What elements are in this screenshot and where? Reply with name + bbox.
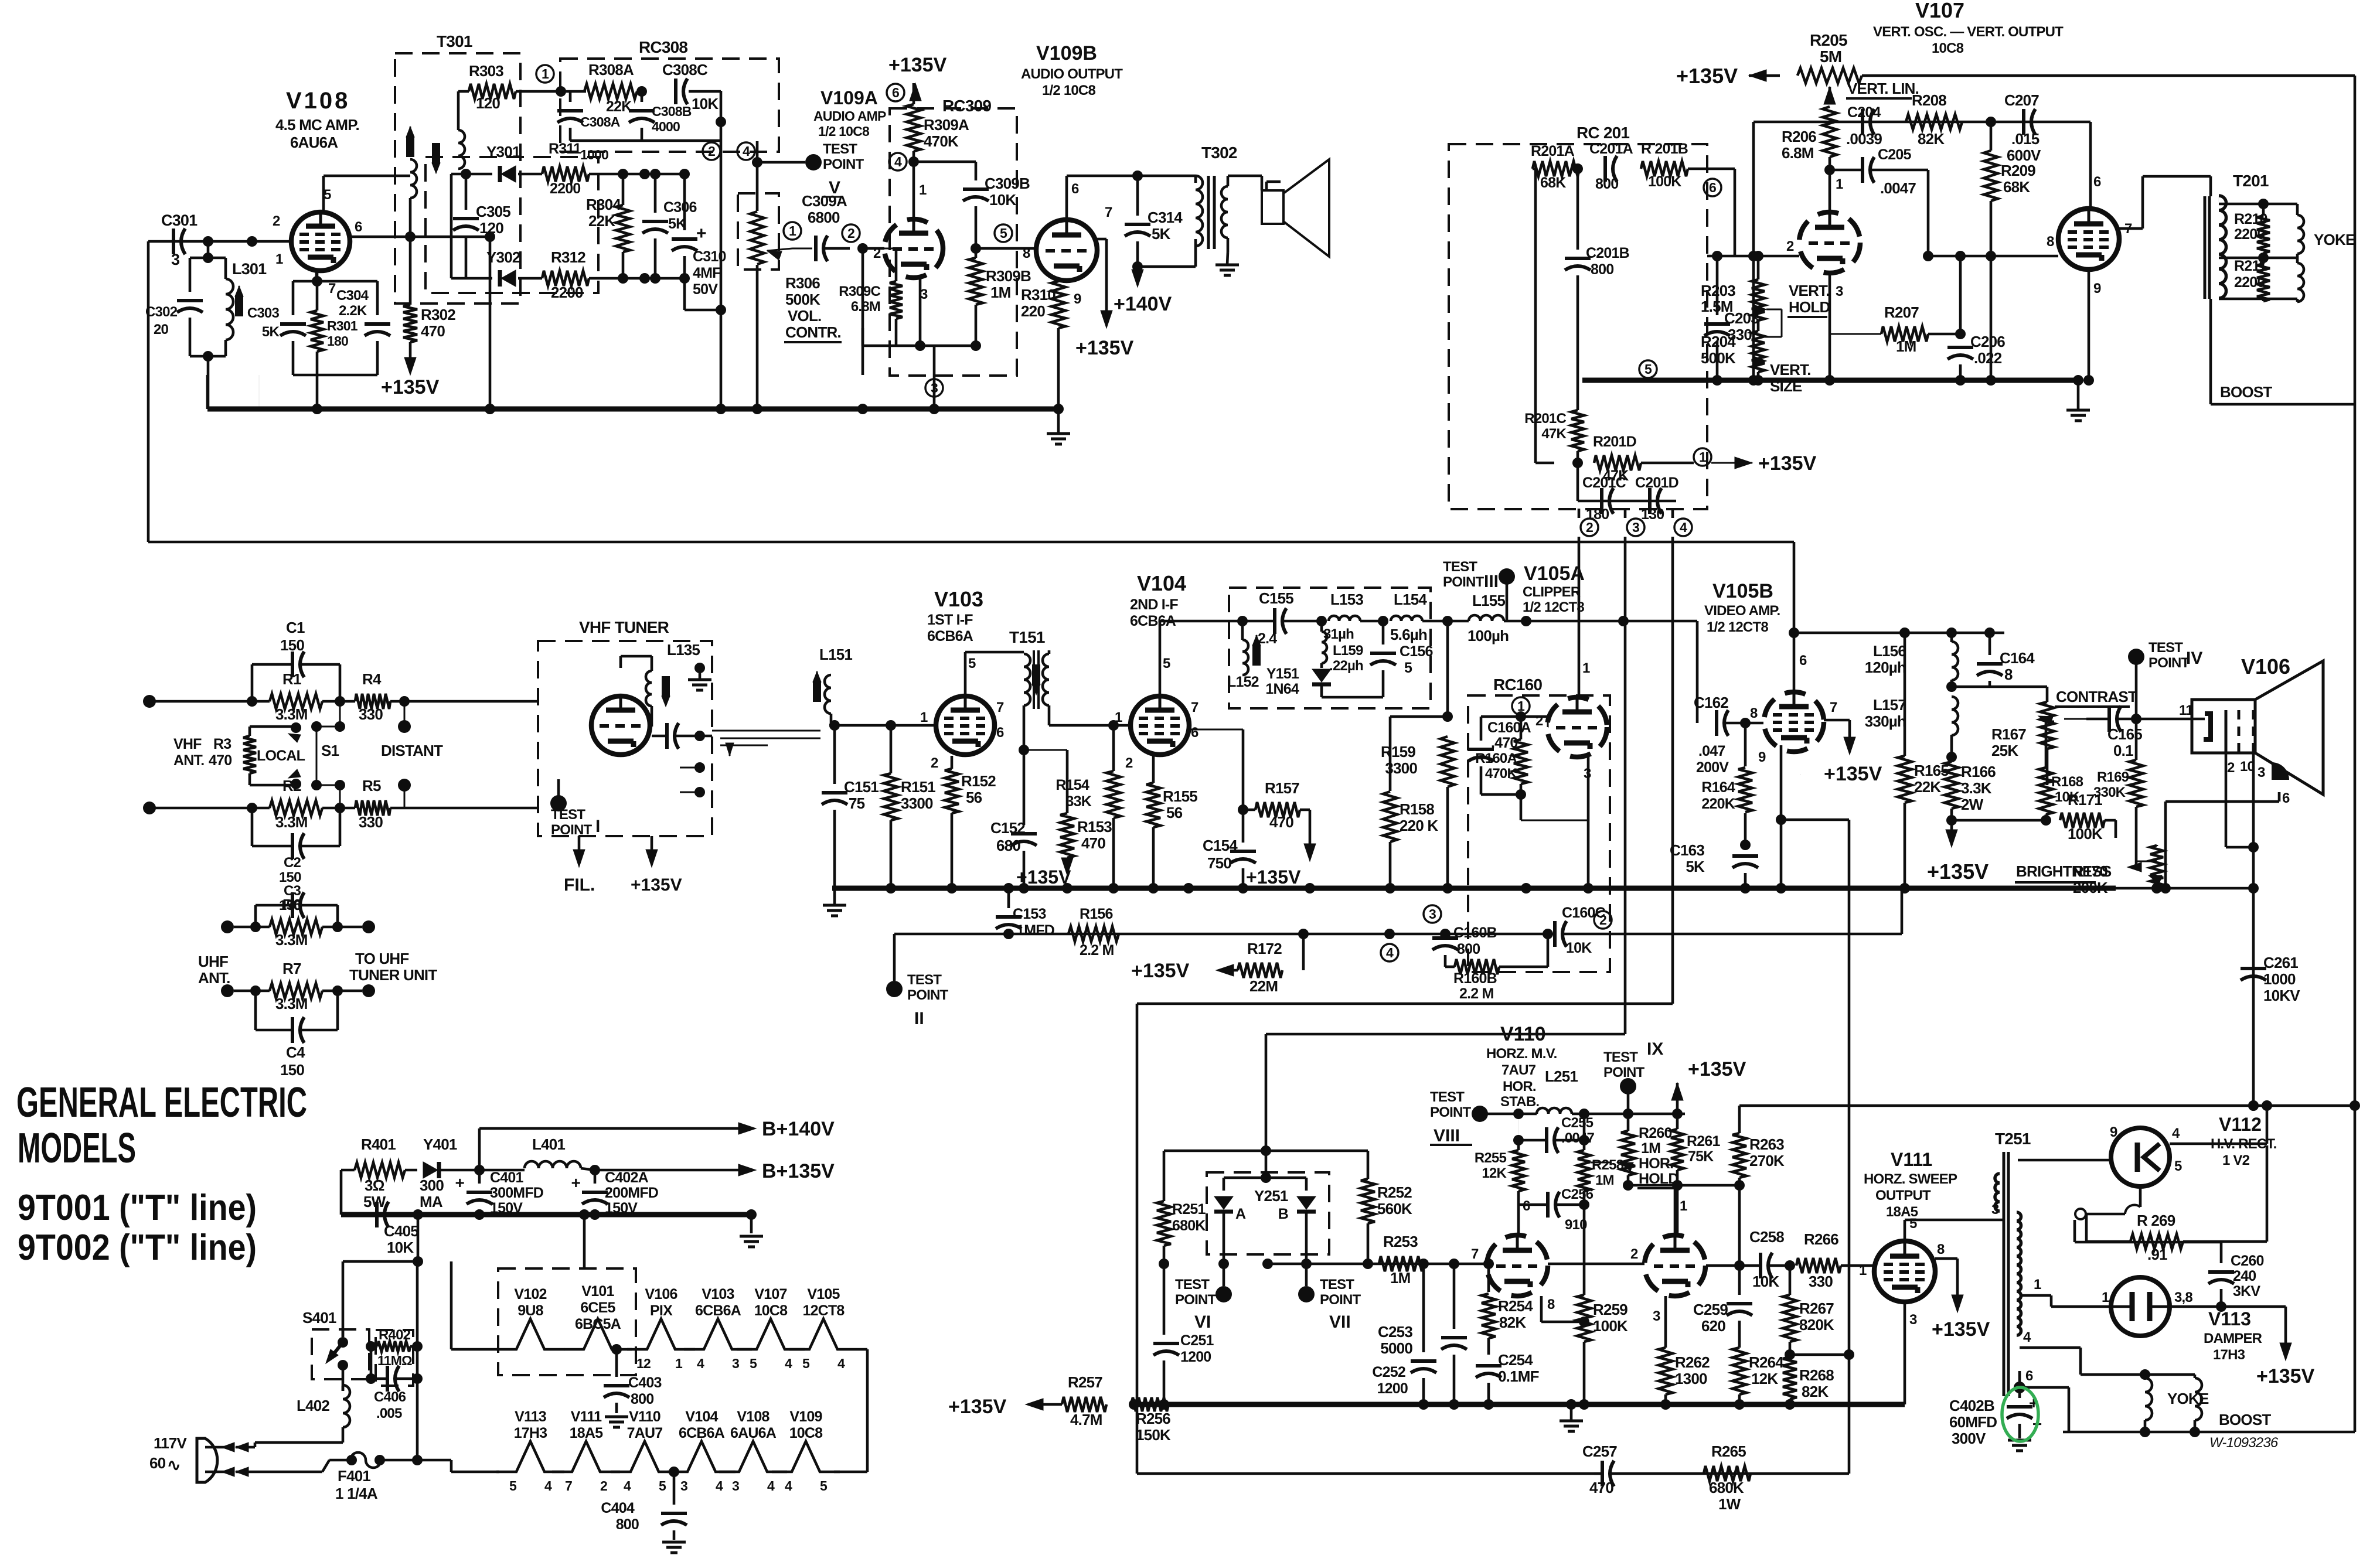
svg-text:17H3: 17H3	[514, 1425, 547, 1441]
svg-text:100K: 100K	[1593, 1317, 1628, 1335]
svg-text:+135V: +135V	[1246, 867, 1301, 888]
svg-text:C204: C204	[1847, 104, 1881, 121]
svg-text:R1: R1	[282, 670, 301, 688]
svg-text:+135V: +135V	[1932, 1318, 1990, 1341]
svg-text:10K: 10K	[692, 95, 719, 112]
svg-text:2200: 2200	[2234, 226, 2265, 243]
svg-text:6.8M: 6.8M	[851, 299, 880, 315]
svg-text:1M: 1M	[1595, 1172, 1614, 1188]
svg-text:4: 4	[697, 1356, 704, 1371]
svg-text:VI: VI	[1194, 1312, 1211, 1332]
svg-text:2: 2	[708, 144, 715, 159]
svg-text:1: 1	[542, 66, 549, 81]
svg-text:1: 1	[2102, 1290, 2109, 1305]
svg-text:POINT: POINT	[907, 987, 948, 1003]
svg-text:HORZ. M.V.: HORZ. M.V.	[1486, 1046, 1557, 1062]
svg-text:7: 7	[565, 1478, 572, 1493]
svg-text:3: 3	[1429, 906, 1436, 922]
svg-text:7AU7: 7AU7	[627, 1425, 663, 1441]
svg-text:.005: .005	[376, 1406, 402, 1421]
svg-text:L402: L402	[297, 1397, 329, 1414]
svg-text:82K: 82K	[1918, 130, 1945, 148]
svg-text:330: 330	[1809, 1273, 1833, 1290]
svg-text:330: 330	[359, 813, 383, 831]
svg-text:L154: L154	[1394, 591, 1427, 608]
svg-text:1/2 10C8: 1/2 10C8	[1042, 83, 1095, 98]
svg-text:C206: C206	[1970, 333, 2005, 350]
svg-text:C160A: C160A	[1487, 719, 1531, 736]
svg-text:VERT. OSC. — VERT. OUTPUT: VERT. OSC. — VERT. OUTPUT	[1873, 24, 2064, 40]
svg-text:6: 6	[2025, 1368, 2033, 1384]
svg-text:100K: 100K	[2068, 825, 2103, 843]
svg-text:TEST: TEST	[823, 141, 857, 157]
svg-text:10KV: 10KV	[2263, 987, 2300, 1004]
svg-text:C252: C252	[1372, 1364, 1405, 1380]
svg-text:3300: 3300	[901, 794, 933, 812]
svg-text:8: 8	[2047, 234, 2054, 250]
svg-text:6: 6	[1523, 1198, 1530, 1214]
svg-text:TEST: TEST	[1443, 559, 1477, 575]
svg-text:R166: R166	[1961, 763, 1996, 780]
svg-text:POINT: POINT	[551, 822, 592, 838]
svg-text:5: 5	[1909, 1216, 1917, 1232]
svg-text:DAMPER: DAMPER	[2204, 1331, 2262, 1346]
svg-text:V109A: V109A	[820, 87, 878, 108]
svg-text:0.1MF: 0.1MF	[1498, 1368, 1539, 1385]
svg-text:6: 6	[996, 725, 1004, 741]
svg-text:6CB6A: 6CB6A	[679, 1425, 725, 1441]
svg-text:V109B: V109B	[1036, 42, 1097, 64]
svg-text:.22µh: .22µh	[1329, 658, 1363, 674]
svg-text:2.2 M: 2.2 M	[1459, 985, 1494, 1002]
svg-text:R263: R263	[1749, 1135, 1784, 1153]
svg-text:RC308: RC308	[639, 38, 687, 56]
svg-text:V106: V106	[645, 1286, 677, 1302]
svg-text:C255: C255	[1561, 1115, 1594, 1131]
svg-text:2: 2	[1786, 238, 1794, 254]
svg-text:V104: V104	[1137, 571, 1186, 595]
svg-text:HOR.: HOR.	[1639, 1155, 1673, 1172]
svg-text:5: 5	[1163, 656, 1170, 671]
svg-text:50V: 50V	[693, 281, 718, 298]
svg-text:C306: C306	[663, 199, 697, 216]
svg-text:7: 7	[1830, 700, 1837, 715]
svg-text:V110: V110	[629, 1409, 660, 1425]
svg-text:S1: S1	[321, 742, 339, 759]
svg-text:C308A: C308A	[580, 114, 620, 129]
svg-text:1W: 1W	[1718, 1495, 1741, 1513]
svg-text:3KV: 3KV	[2233, 1283, 2260, 1300]
svg-text:TO UHF: TO UHF	[355, 950, 409, 967]
svg-text:HORZ. SWEEP: HORZ. SWEEP	[1864, 1171, 1957, 1187]
svg-text:800: 800	[1457, 941, 1480, 957]
svg-text:R251: R251	[1172, 1201, 1206, 1218]
svg-text:2ND I-F: 2ND I-F	[1130, 596, 1178, 613]
svg-text:R206: R206	[1782, 128, 1816, 145]
svg-text:C260: C260	[2231, 1253, 2264, 1269]
svg-text:C259: C259	[1693, 1301, 1728, 1318]
svg-text:R264: R264	[1749, 1353, 1784, 1371]
svg-text:1M: 1M	[1896, 337, 1916, 355]
svg-text:.0047: .0047	[1561, 1130, 1595, 1146]
svg-text:R310: R310	[1021, 286, 1055, 304]
svg-text:680K: 680K	[1709, 1479, 1744, 1496]
svg-text:+135V: +135V	[1758, 452, 1817, 475]
svg-text:R201D: R201D	[1593, 434, 1636, 450]
svg-text:3: 3	[1836, 284, 1843, 299]
svg-text:C301: C301	[161, 212, 198, 229]
svg-text:B+135V: B+135V	[762, 1160, 835, 1182]
svg-text:R158: R158	[1400, 800, 1434, 818]
svg-text:1 1/4A: 1 1/4A	[335, 1485, 378, 1502]
svg-text:2W: 2W	[1961, 796, 1984, 813]
svg-text:+: +	[696, 224, 707, 243]
svg-text:8: 8	[1547, 1297, 1555, 1312]
svg-text:1300: 1300	[1675, 1370, 1707, 1387]
svg-text:C253: C253	[1378, 1323, 1412, 1341]
svg-text:R2: R2	[282, 777, 301, 794]
svg-text:12: 12	[636, 1356, 651, 1371]
svg-text:Y151: Y151	[1266, 666, 1299, 682]
svg-text:10K: 10K	[1752, 1273, 1779, 1290]
svg-text:4: 4	[785, 1478, 792, 1493]
svg-text:C257: C257	[1582, 1443, 1617, 1460]
svg-text:200MFD: 200MFD	[605, 1185, 658, 1201]
svg-text:V107: V107	[754, 1286, 786, 1302]
svg-text:60MFD: 60MFD	[1949, 1413, 1997, 1431]
svg-text:2: 2	[931, 755, 938, 771]
svg-text:R265: R265	[1711, 1443, 1746, 1460]
svg-text:1N64: 1N64	[1265, 681, 1299, 697]
svg-text:.015: .015	[2011, 130, 2039, 148]
svg-text:TEST: TEST	[907, 972, 942, 988]
svg-text:2.2 M: 2.2 M	[1080, 942, 1114, 959]
svg-text:C402A: C402A	[605, 1169, 649, 1186]
svg-text:Y251: Y251	[1254, 1187, 1288, 1205]
svg-text:+135V: +135V	[631, 875, 682, 895]
svg-text:12K: 12K	[1482, 1165, 1507, 1181]
svg-text:R257: R257	[1068, 1373, 1102, 1391]
svg-text:VERT. LIN.: VERT. LIN.	[1847, 80, 1919, 97]
svg-text:31µh: 31µh	[1323, 626, 1354, 642]
svg-text:1200: 1200	[1180, 1349, 1211, 1365]
svg-text:3Ω: 3Ω	[365, 1177, 384, 1194]
svg-text:1: 1	[675, 1356, 683, 1371]
svg-text:20: 20	[154, 322, 169, 337]
svg-text:5K: 5K	[1152, 225, 1171, 243]
svg-text:MA: MA	[420, 1193, 443, 1210]
svg-text:4: 4	[894, 154, 902, 169]
svg-text:1: 1	[1836, 176, 1843, 192]
svg-text:V111: V111	[1891, 1149, 1932, 1170]
svg-text:C256: C256	[1561, 1186, 1594, 1202]
svg-text:VHF: VHF	[173, 736, 202, 752]
svg-text:300: 300	[420, 1177, 444, 1194]
svg-text:1: 1	[275, 251, 283, 267]
svg-text:CLIPPER: CLIPPER	[1523, 584, 1581, 600]
svg-text:+135V: +135V	[1688, 1058, 1746, 1080]
svg-text:800: 800	[616, 1516, 639, 1533]
svg-text:9: 9	[2093, 281, 2101, 296]
svg-text:6BC5A: 6BC5A	[575, 1316, 621, 1332]
svg-text:C203: C203	[1724, 309, 1759, 327]
svg-text:UHF: UHF	[198, 953, 228, 970]
svg-text:C303: C303	[247, 305, 280, 321]
svg-text:LOCAL: LOCAL	[257, 748, 305, 764]
svg-text:A: A	[1235, 1206, 1246, 1222]
svg-text:R266: R266	[1804, 1230, 1838, 1248]
svg-text:T302: T302	[1201, 144, 1237, 162]
svg-text:AUDIO AMP: AUDIO AMP	[813, 108, 886, 124]
svg-text:V105B: V105B	[1712, 580, 1773, 602]
svg-text:220: 220	[1021, 302, 1045, 320]
svg-text:C164: C164	[2000, 649, 2035, 667]
svg-text:4: 4	[624, 1478, 631, 1493]
svg-text:330: 330	[1728, 326, 1752, 343]
svg-text:BOOST: BOOST	[2220, 383, 2272, 401]
svg-text:C261: C261	[2263, 954, 2298, 971]
svg-text:YOKE: YOKE	[2314, 231, 2355, 248]
svg-text:RC309: RC309	[942, 97, 991, 115]
svg-text:56: 56	[966, 789, 982, 806]
svg-text:R154: R154	[1055, 777, 1089, 793]
svg-text:7: 7	[1105, 204, 1112, 220]
svg-text:470: 470	[1589, 1479, 1613, 1496]
svg-text:620: 620	[1701, 1317, 1725, 1335]
svg-text:C2: C2	[284, 855, 301, 871]
svg-text:4: 4	[743, 144, 750, 159]
svg-text:C302: C302	[145, 304, 178, 320]
svg-text:+135V: +135V	[1131, 960, 1190, 982]
svg-text:2200: 2200	[550, 180, 580, 197]
svg-text:3.3M: 3.3M	[275, 705, 308, 723]
svg-text:C314: C314	[1148, 209, 1183, 226]
svg-text:TEST: TEST	[1320, 1277, 1354, 1293]
svg-text:4: 4	[716, 1478, 723, 1493]
svg-text:9U8: 9U8	[517, 1302, 543, 1319]
svg-text:V108: V108	[737, 1409, 770, 1425]
svg-text:22M: 22M	[1249, 977, 1278, 995]
svg-text:12CT8: 12CT8	[802, 1302, 845, 1319]
svg-text:4.5 MC AMP.: 4.5 MC AMP.	[275, 116, 359, 134]
svg-text:6: 6	[1709, 180, 1716, 195]
svg-text:1: 1	[919, 182, 927, 198]
svg-text:R309C: R309C	[839, 284, 880, 299]
svg-text:82K: 82K	[1802, 1383, 1829, 1400]
svg-text:POINT: POINT	[1320, 1292, 1361, 1308]
svg-text:C251: C251	[1180, 1332, 1214, 1349]
svg-text:VHF TUNER: VHF TUNER	[579, 618, 669, 636]
svg-text:R156: R156	[1080, 906, 1113, 922]
svg-text:Y301: Y301	[486, 143, 520, 161]
svg-text:C152: C152	[990, 819, 1025, 837]
svg-text:470K: 470K	[924, 132, 959, 150]
svg-text:8: 8	[1937, 1242, 1945, 1257]
svg-text:VERT.: VERT.	[1789, 282, 1830, 299]
svg-text:V107: V107	[1915, 0, 1964, 22]
svg-text:.1MFD: .1MFD	[1013, 922, 1054, 939]
svg-text:68K: 68K	[2003, 178, 2030, 196]
svg-text:150: 150	[280, 636, 304, 654]
svg-text:R209: R209	[2001, 162, 2035, 179]
svg-text:DISTANT: DISTANT	[381, 742, 443, 759]
svg-text:+135V: +135V	[381, 376, 440, 398]
svg-text:22K: 22K	[588, 212, 615, 230]
svg-text:V108: V108	[286, 88, 350, 114]
svg-text:C151: C151	[844, 778, 879, 796]
svg-text:7: 7	[1471, 1246, 1479, 1262]
svg-text:9T001 ("T" line): 9T001 ("T" line)	[18, 1188, 257, 1228]
svg-text:BRIGHTNESS: BRIGHTNESS	[2016, 862, 2112, 880]
svg-text:R7: R7	[282, 960, 301, 977]
svg-text:C401: C401	[490, 1169, 523, 1186]
svg-text:3: 3	[732, 1356, 739, 1371]
svg-text:R401: R401	[361, 1135, 396, 1153]
svg-text:4: 4	[2023, 1329, 2031, 1345]
svg-text:180: 180	[327, 333, 348, 349]
svg-text:R253: R253	[1383, 1233, 1418, 1250]
svg-text:R153: R153	[1077, 818, 1112, 836]
svg-text:200V: 200V	[1696, 759, 1729, 776]
svg-text:C201B: C201B	[1586, 245, 1629, 261]
svg-text:POINT: POINT	[1175, 1292, 1216, 1308]
svg-text:2: 2	[2227, 760, 2235, 776]
svg-text:C304: C304	[336, 288, 369, 304]
svg-text:T301: T301	[437, 32, 472, 50]
svg-text:150K: 150K	[1136, 1426, 1171, 1444]
svg-text:.0039: .0039	[1846, 130, 1882, 148]
svg-text:22K: 22K	[1914, 778, 1941, 796]
svg-text:T251: T251	[1995, 1130, 2031, 1148]
svg-text:L251: L251	[1545, 1068, 1578, 1085]
svg-text:5: 5	[509, 1478, 517, 1493]
svg-text:R260: R260	[1639, 1125, 1672, 1141]
svg-text:47K: 47K	[1541, 426, 1567, 442]
svg-text:130: 130	[1641, 506, 1664, 523]
svg-text:5: 5	[659, 1478, 666, 1493]
svg-text:YOKE: YOKE	[2167, 1390, 2209, 1407]
svg-text:POINT: POINT	[1603, 1065, 1644, 1080]
svg-text:+140V: +140V	[1114, 293, 1172, 315]
svg-text:270K: 270K	[1749, 1152, 1785, 1169]
svg-text:18A5: 18A5	[570, 1425, 603, 1441]
svg-text:AUDIO OUTPUT: AUDIO OUTPUT	[1021, 66, 1123, 82]
svg-text:+135V: +135V	[1927, 860, 1989, 884]
svg-text:B: B	[1278, 1206, 1288, 1222]
svg-text:750: 750	[1207, 854, 1231, 872]
svg-text:1/2 10C8: 1/2 10C8	[818, 124, 870, 139]
svg-text:3: 3	[1632, 520, 1639, 535]
svg-text:R159: R159	[1381, 743, 1415, 761]
svg-text:STAB.: STAB.	[1500, 1094, 1539, 1110]
svg-text:117V: 117V	[154, 1434, 188, 1452]
svg-text:3.3M: 3.3M	[275, 931, 308, 949]
svg-text:2: 2	[600, 1478, 607, 1493]
svg-text:220K: 220K	[1701, 796, 1735, 812]
svg-text:R311: R311	[549, 141, 581, 157]
svg-text:VII: VII	[1329, 1312, 1351, 1332]
svg-text:1M: 1M	[1390, 1269, 1411, 1287]
svg-text:R6: R6	[282, 896, 301, 913]
svg-text:5: 5	[802, 1356, 810, 1371]
svg-text:R208: R208	[1912, 91, 1946, 109]
svg-text:R309A: R309A	[924, 116, 969, 134]
svg-text:GENERAL ELECTRIC: GENERAL ELECTRIC	[16, 1079, 307, 1126]
svg-text:R267: R267	[1799, 1300, 1834, 1317]
svg-text:V102: V102	[514, 1286, 546, 1302]
svg-text:6CE5: 6CE5	[580, 1300, 615, 1316]
svg-text:3: 3	[2258, 765, 2265, 780]
svg-text:R151: R151	[901, 778, 935, 796]
svg-text:L156: L156	[1873, 642, 1906, 660]
svg-text:CONTR.: CONTR.	[785, 323, 841, 341]
svg-text:.022: .022	[1974, 349, 2002, 367]
svg-text:V106: V106	[2241, 654, 2290, 678]
svg-text:6.8M: 6.8M	[1782, 144, 1814, 162]
svg-text:3: 3	[171, 251, 180, 268]
svg-text:.91: .91	[2147, 1246, 2167, 1263]
svg-text:R157: R157	[1265, 779, 1299, 797]
svg-text:V105: V105	[807, 1286, 840, 1302]
svg-text:R259: R259	[1593, 1301, 1627, 1318]
svg-text:II: II	[914, 1009, 924, 1028]
svg-text:4.7M: 4.7M	[1070, 1411, 1102, 1428]
svg-text:2: 2	[273, 213, 280, 229]
svg-text:B+140V: B+140V	[762, 1118, 835, 1140]
svg-text:4: 4	[2172, 1126, 2180, 1141]
svg-text:C1: C1	[286, 619, 305, 636]
svg-text:150: 150	[280, 1061, 304, 1079]
svg-text:V113: V113	[2208, 1308, 2251, 1329]
svg-text:5K: 5K	[262, 324, 280, 340]
svg-text:+135V: +135V	[1676, 64, 1738, 88]
svg-text:Y401: Y401	[423, 1135, 457, 1153]
svg-text:C163: C163	[1670, 841, 1704, 859]
svg-text:R301: R301	[327, 318, 358, 333]
svg-text:R 269: R 269	[2137, 1212, 2175, 1229]
svg-text:470: 470	[209, 752, 231, 769]
svg-text:1 V2: 1 V2	[2222, 1152, 2250, 1168]
svg-text:3: 3	[931, 380, 938, 395]
svg-text:C309A: C309A	[802, 192, 847, 210]
svg-text:8: 8	[1750, 705, 1758, 721]
svg-text:R304: R304	[586, 196, 621, 213]
svg-text:C156: C156	[1400, 643, 1433, 660]
svg-text:1: 1	[1680, 1198, 1687, 1214]
svg-text:R207: R207	[1884, 304, 1919, 321]
svg-text:8: 8	[1023, 245, 1030, 261]
svg-text:10K: 10K	[387, 1239, 414, 1256]
svg-text:68K: 68K	[1540, 175, 1566, 191]
svg-text:C258: C258	[1749, 1228, 1784, 1246]
svg-text:7: 7	[996, 700, 1004, 715]
svg-text:C201D: C201D	[1635, 475, 1678, 491]
svg-text:R172: R172	[1247, 940, 1282, 957]
svg-text:6: 6	[355, 219, 362, 235]
svg-text:11: 11	[2179, 703, 2193, 718]
svg-text:75K: 75K	[1688, 1148, 1714, 1165]
svg-text:3: 3	[680, 1478, 687, 1493]
svg-text:2: 2	[1125, 755, 1133, 771]
svg-text:R308A: R308A	[588, 61, 634, 79]
svg-text:100K: 100K	[1648, 173, 1681, 190]
svg-text:7: 7	[1191, 700, 1198, 715]
svg-text:3.3M: 3.3M	[275, 813, 308, 831]
svg-text:5K: 5K	[1686, 858, 1705, 875]
svg-text:4: 4	[1386, 945, 1394, 960]
svg-text:.047: .047	[1698, 743, 1725, 759]
svg-text:C405: C405	[384, 1222, 418, 1240]
